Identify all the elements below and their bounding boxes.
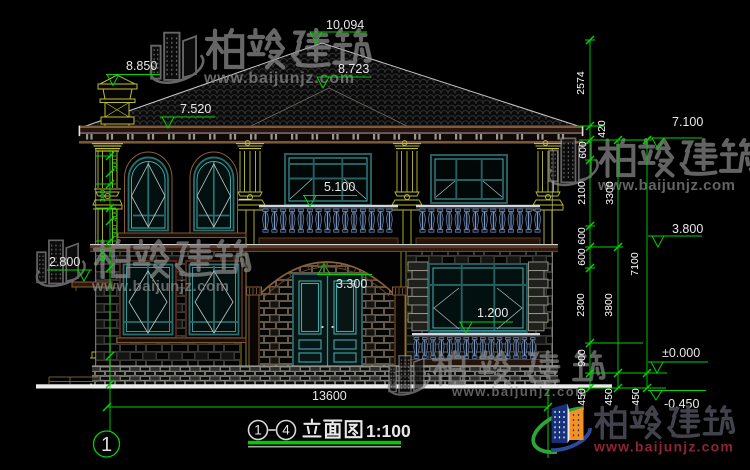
svg-text:www.baijunjz.com: www.baijunjz.com bbox=[91, 278, 229, 295]
svg-text:www.baijunjz.com: www.baijunjz.com bbox=[451, 384, 588, 399]
svg-text:400: 400 bbox=[110, 209, 119, 222]
svg-text:600: 600 bbox=[110, 225, 119, 238]
svg-text:1:100: 1:100 bbox=[366, 421, 411, 441]
svg-text:7.100: 7.100 bbox=[672, 115, 703, 129]
svg-text:3800: 3800 bbox=[603, 293, 615, 317]
svg-text:5.100: 5.100 bbox=[324, 180, 355, 194]
svg-text:1: 1 bbox=[254, 423, 262, 438]
svg-text:4: 4 bbox=[282, 423, 290, 438]
svg-text:7100: 7100 bbox=[629, 252, 641, 276]
svg-text:www.baijunjz.com: www.baijunjz.com bbox=[593, 439, 734, 455]
svg-text:600: 600 bbox=[576, 248, 588, 266]
svg-text:600: 600 bbox=[576, 227, 588, 245]
svg-text:13600: 13600 bbox=[312, 389, 347, 403]
svg-text:2.800: 2.800 bbox=[49, 255, 80, 269]
svg-text:420: 420 bbox=[596, 120, 608, 138]
svg-text:1: 1 bbox=[101, 434, 112, 456]
svg-text:600: 600 bbox=[577, 141, 589, 159]
svg-text:3.800: 3.800 bbox=[672, 222, 703, 236]
svg-text:450: 450 bbox=[576, 388, 588, 406]
svg-text:1.200: 1.200 bbox=[477, 306, 508, 320]
svg-text:900: 900 bbox=[576, 349, 588, 367]
svg-text:www.baijunjz.com: www.baijunjz.com bbox=[203, 70, 355, 87]
svg-text:2300: 2300 bbox=[575, 293, 587, 317]
svg-text:500: 500 bbox=[110, 159, 119, 172]
svg-text:600: 600 bbox=[98, 249, 107, 262]
svg-text:2100: 2100 bbox=[576, 181, 588, 205]
svg-text:±0.000: ±0.000 bbox=[662, 346, 700, 360]
svg-text:450: 450 bbox=[630, 388, 642, 406]
svg-text:450: 450 bbox=[603, 388, 615, 406]
svg-text:300: 300 bbox=[98, 190, 107, 203]
svg-text:7.520: 7.520 bbox=[180, 102, 211, 116]
svg-text:3300: 3300 bbox=[604, 181, 616, 205]
svg-text:10.094: 10.094 bbox=[326, 18, 364, 32]
svg-text:8.850: 8.850 bbox=[126, 59, 157, 73]
svg-text:8.723: 8.723 bbox=[338, 62, 369, 76]
svg-text:3.300: 3.300 bbox=[336, 277, 367, 291]
svg-text:2574: 2574 bbox=[575, 71, 587, 95]
